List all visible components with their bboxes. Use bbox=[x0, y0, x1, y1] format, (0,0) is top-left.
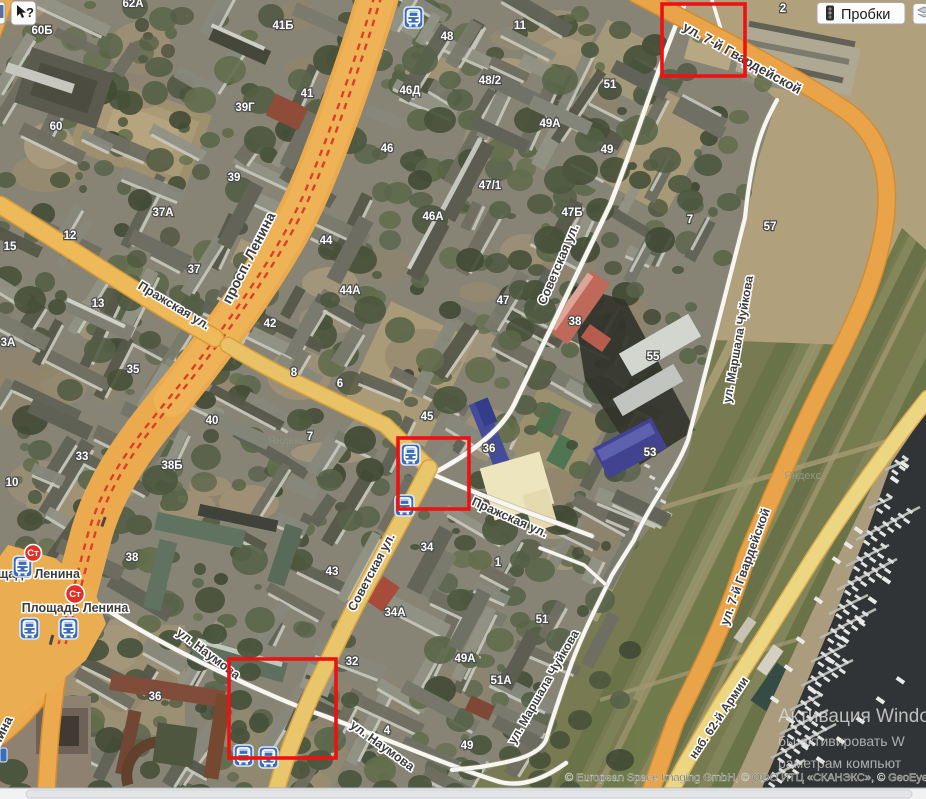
svg-text:13: 13 bbox=[92, 298, 105, 310]
svg-text:43: 43 bbox=[326, 566, 339, 578]
svg-text:Пробки: Пробки bbox=[841, 7, 890, 23]
svg-text:46Д: 46Д bbox=[400, 85, 421, 97]
svg-text:45: 45 bbox=[421, 411, 434, 423]
svg-text:40: 40 bbox=[206, 415, 219, 427]
svg-text:51: 51 bbox=[536, 614, 549, 626]
svg-text:?: ? bbox=[26, 5, 34, 20]
svg-text:11: 11 bbox=[514, 20, 527, 32]
svg-text:Ст: Ст bbox=[27, 548, 39, 559]
svg-text:33: 33 bbox=[76, 451, 89, 463]
svg-text:55: 55 bbox=[647, 351, 660, 363]
svg-text:49А: 49А bbox=[454, 653, 475, 665]
svg-text:51А: 51А bbox=[490, 675, 511, 687]
svg-text:47/1: 47/1 bbox=[479, 180, 502, 192]
svg-text:36: 36 bbox=[483, 443, 496, 455]
svg-text:60: 60 bbox=[50, 121, 63, 133]
svg-text:49: 49 bbox=[601, 144, 614, 156]
svg-text:48/2: 48/2 bbox=[479, 75, 501, 87]
svg-text:бы активировать W: бы активировать W bbox=[778, 733, 905, 749]
svg-text:35: 35 bbox=[127, 364, 140, 376]
svg-text:42: 42 bbox=[264, 318, 277, 330]
svg-text:41: 41 bbox=[301, 88, 314, 100]
svg-text:раметрам компьют: раметрам компьют bbox=[778, 755, 902, 771]
svg-text:38Б: 38Б bbox=[161, 460, 182, 472]
svg-text:38: 38 bbox=[126, 552, 139, 564]
svg-text:46А: 46А bbox=[422, 211, 443, 223]
svg-text:8: 8 bbox=[291, 367, 298, 379]
svg-text:41Б: 41Б bbox=[272, 20, 293, 32]
svg-text:53: 53 bbox=[644, 447, 657, 459]
svg-text:1: 1 bbox=[495, 557, 502, 569]
svg-text:Ст: Ст bbox=[69, 589, 81, 600]
svg-text:60Б: 60Б bbox=[31, 25, 52, 37]
svg-text:57: 57 bbox=[764, 221, 777, 233]
svg-text:15: 15 bbox=[4, 241, 17, 253]
svg-text:4: 4 bbox=[384, 725, 391, 737]
svg-text:10: 10 bbox=[6, 477, 19, 489]
svg-text:37А: 37А bbox=[152, 207, 173, 219]
svg-text:39: 39 bbox=[228, 172, 241, 184]
svg-text:51: 51 bbox=[604, 79, 617, 91]
svg-text:36: 36 bbox=[149, 691, 162, 703]
svg-text:39Г: 39Г bbox=[235, 102, 255, 114]
svg-text:7: 7 bbox=[307, 431, 313, 443]
svg-text:44А: 44А bbox=[339, 285, 360, 297]
svg-text:2: 2 bbox=[780, 3, 786, 15]
svg-text:32: 32 bbox=[346, 656, 359, 668]
svg-text:44: 44 bbox=[320, 235, 333, 247]
svg-text:47Б: 47Б bbox=[561, 207, 582, 219]
svg-text:ощадь Ленина: ощадь Ленина bbox=[0, 567, 81, 581]
svg-text:37: 37 bbox=[188, 264, 201, 276]
svg-text:3А: 3А bbox=[1, 337, 16, 349]
svg-text:© European Space Imaging GmbH,: © European Space Imaging GmbH, © ООО ИТЦ… bbox=[565, 772, 926, 784]
svg-text:12: 12 bbox=[64, 230, 77, 242]
svg-text:49А: 49А bbox=[539, 118, 560, 130]
svg-text:Яндекс: Яндекс bbox=[268, 435, 305, 447]
svg-text:47: 47 bbox=[497, 295, 510, 307]
svg-text:34: 34 bbox=[421, 542, 434, 554]
svg-text:49: 49 bbox=[461, 740, 474, 752]
svg-text:7: 7 bbox=[687, 214, 693, 226]
svg-text:34А: 34А bbox=[384, 607, 405, 619]
svg-text:Яндекс: Яндекс bbox=[784, 470, 821, 482]
svg-text:46: 46 bbox=[381, 143, 394, 155]
svg-text:6: 6 bbox=[337, 378, 343, 390]
svg-text:48: 48 bbox=[441, 31, 454, 43]
svg-text:Активация Windo: Активация Windo bbox=[778, 706, 926, 727]
svg-text:62А: 62А bbox=[122, 0, 143, 10]
svg-text:38: 38 bbox=[569, 316, 582, 328]
